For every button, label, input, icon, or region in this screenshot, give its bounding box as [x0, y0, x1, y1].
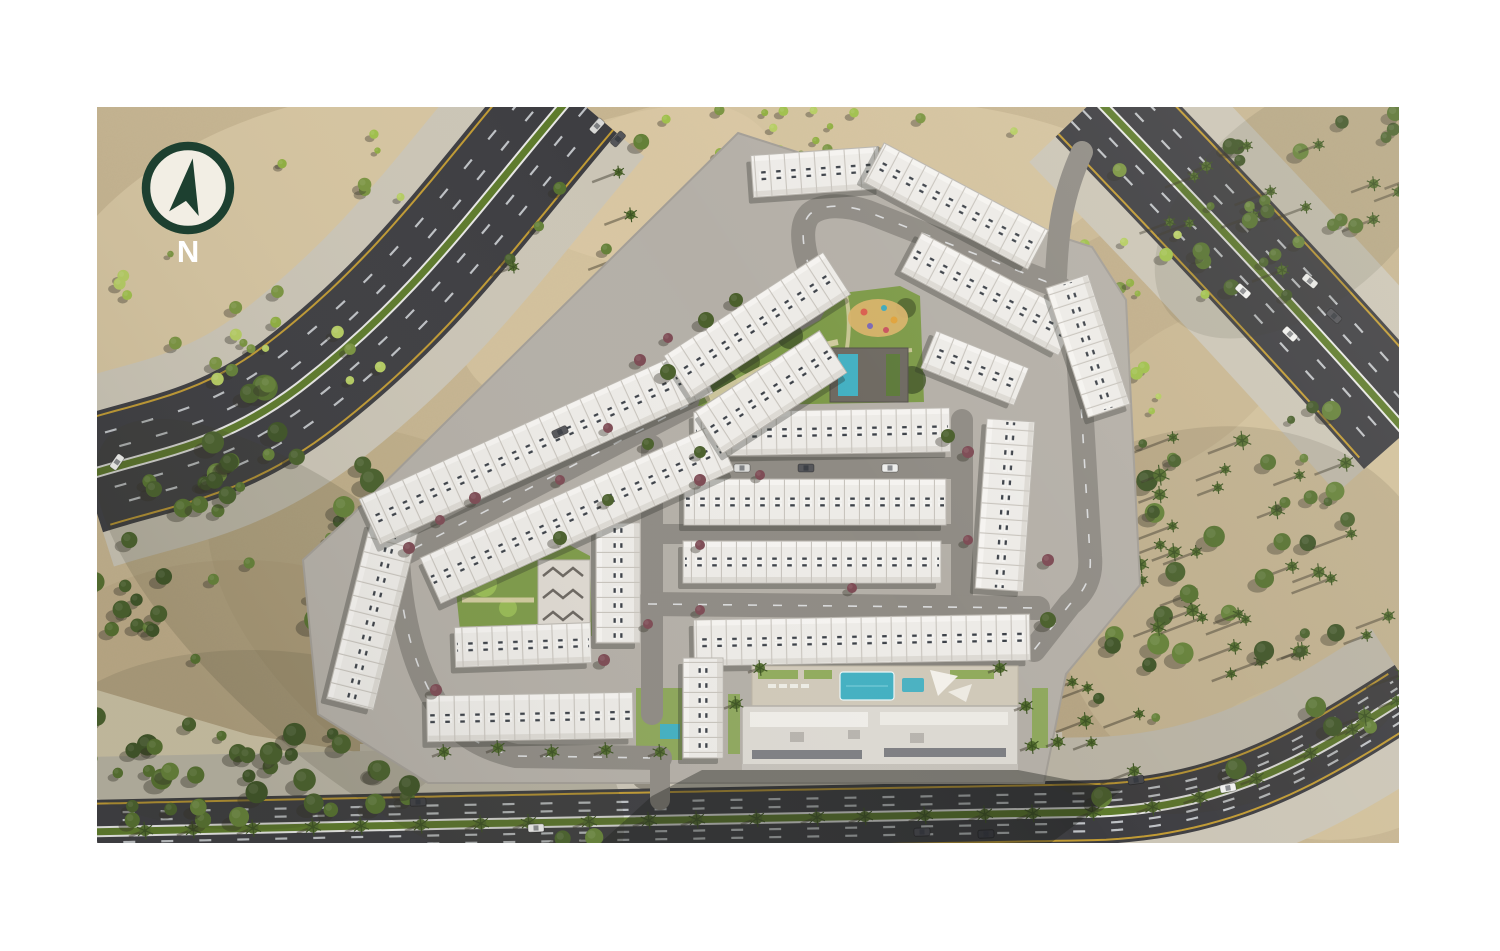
scene [8, 19, 1495, 951]
tree [82, 753, 98, 767]
tree [1349, 77, 1366, 92]
palm-tree [1332, 47, 1359, 61]
sunlight-overlay [97, 107, 1399, 843]
tree [73, 620, 85, 631]
compass-north-label: N [177, 234, 199, 269]
page: N [0, 0, 1500, 951]
tree [1335, 61, 1359, 82]
masterplan-aerial-view: N [0, 0, 1500, 951]
